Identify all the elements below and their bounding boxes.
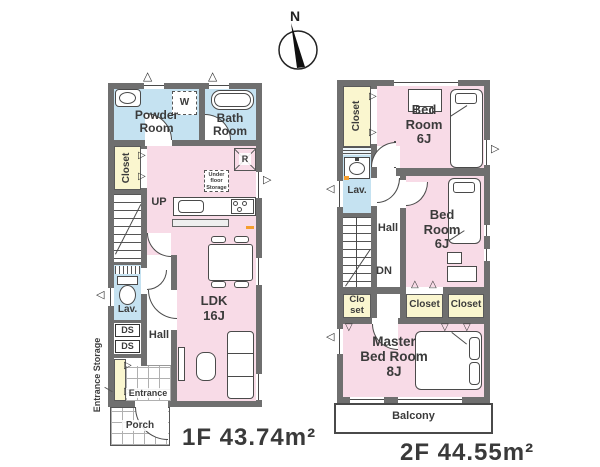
lav-shelf-2f xyxy=(343,147,371,155)
folding-door-icon: ▽ xyxy=(345,323,353,333)
room-label-closet-inner: Closet xyxy=(406,299,443,310)
washer-label: W xyxy=(179,97,190,108)
orange-marker xyxy=(344,176,349,180)
wall-wet-bottom-right xyxy=(172,140,256,146)
floor1-wall-ds-entrance xyxy=(114,354,141,358)
window xyxy=(144,83,164,89)
floor2-title: 2F 44.55m² xyxy=(400,439,534,467)
wall-bedroom1-bedroom2 xyxy=(396,168,484,176)
room-label-closet-outer: Closet xyxy=(448,299,484,310)
room-label-porch: Porch xyxy=(122,420,158,431)
room-label-bedroom-north: Bed Room 6J xyxy=(398,103,450,147)
compass-icon: N xyxy=(274,6,322,74)
label-up: UP xyxy=(147,196,171,208)
sofa-cushion-line xyxy=(227,353,254,354)
toilet-bowl xyxy=(119,285,136,305)
window-marker-icon: ▷ xyxy=(263,174,271,185)
orange-marker xyxy=(246,226,254,229)
compass-north-label: N xyxy=(290,8,300,24)
window xyxy=(484,140,490,165)
ds-lower-box: DS xyxy=(115,340,140,353)
powder-sink-bowl xyxy=(119,92,136,104)
vent-marker-icon: △ xyxy=(208,70,217,82)
folding-door-icon: △ xyxy=(429,280,437,290)
sofa-cushion-line xyxy=(227,376,254,377)
room-label-balcony: Balcony xyxy=(334,410,493,422)
kitchen-island xyxy=(172,219,229,227)
window xyxy=(394,80,458,86)
window xyxy=(337,329,343,354)
folding-door-icon: ▷ xyxy=(369,92,377,102)
label-dn: DN xyxy=(372,265,396,277)
burner-icon xyxy=(233,201,238,206)
folding-door-icon: ▷ xyxy=(369,128,377,138)
room-label-powder: Powder Room xyxy=(114,109,199,136)
vent-marker-icon: △ xyxy=(143,70,152,82)
dining-chair xyxy=(211,281,226,288)
under-floor-storage: Under floor Storage xyxy=(204,170,229,192)
window-marker-icon: ◁ xyxy=(326,331,334,342)
folding-door-icon: ▷ xyxy=(124,361,132,371)
folding-door-icon: ▽ xyxy=(463,323,471,333)
window xyxy=(484,249,490,261)
room-label-hall1f: Hall xyxy=(145,329,173,341)
floor-plan-canvas: N DS DS W xyxy=(0,0,600,467)
room-label-bedroom-middle: Bed Room 6J xyxy=(418,208,466,252)
folding-door-icon: ▷ xyxy=(138,151,146,161)
pillow xyxy=(469,337,480,360)
burner-icon xyxy=(237,207,242,212)
vanity-faucet xyxy=(355,158,359,161)
stairs-center-line xyxy=(356,217,357,289)
desk xyxy=(447,266,477,282)
window xyxy=(209,83,229,89)
window xyxy=(484,225,490,236)
window-marker-icon: ▷ xyxy=(491,143,499,154)
pillow xyxy=(469,362,480,385)
room-label-master: Master Bed Room 8J xyxy=(348,334,440,379)
room-label-lav1f: Lav. xyxy=(114,304,141,315)
room-label-hall2f: Hall xyxy=(374,222,402,234)
powder-door-opening xyxy=(145,140,172,146)
room-label-bath: Bath Room xyxy=(204,112,256,139)
room-label-lav2f: Lav. xyxy=(343,185,371,196)
dining-table xyxy=(208,244,253,281)
folding-door-icon: ▷ xyxy=(138,172,146,182)
wall-closet-row-right xyxy=(443,287,484,294)
floor1-wall-lav-ds xyxy=(114,320,141,323)
window xyxy=(256,258,262,285)
pillow xyxy=(455,93,477,104)
room-label-entrance: Entrance xyxy=(126,388,170,398)
desk-chair xyxy=(447,252,462,264)
room-label-closet2f: Closet xyxy=(351,90,363,142)
window xyxy=(256,374,262,400)
window xyxy=(256,172,262,198)
folding-door-icon: △ xyxy=(411,280,419,290)
ds-lower-label: DS xyxy=(121,341,134,351)
dining-chair xyxy=(234,281,249,288)
window-marker-icon: ◁ xyxy=(326,183,334,194)
room-label-closet1f: Closet xyxy=(121,142,133,194)
sofa xyxy=(227,331,254,399)
ds-upper-label: DS xyxy=(121,325,134,335)
room-label-closet-stair: Clo set xyxy=(343,295,371,316)
lav-shelf xyxy=(115,266,140,274)
toilet-tank xyxy=(117,276,138,285)
dining-chair xyxy=(234,236,249,243)
ds-upper-box: DS xyxy=(115,324,140,337)
kitchen-sink xyxy=(178,200,204,213)
floor1-title: 1F 43.74m² xyxy=(182,424,316,452)
room-label-ldk: LDK 16J xyxy=(188,294,240,323)
bathtub-inner xyxy=(214,93,251,107)
wall-closet-row-left xyxy=(343,287,406,294)
burner-icon xyxy=(242,201,247,206)
folding-door-icon: ▽ xyxy=(441,323,449,333)
pillow xyxy=(453,182,475,193)
refrigerator-label: R xyxy=(239,153,251,165)
vanity-basin xyxy=(349,162,365,175)
coffee-table xyxy=(196,352,216,381)
dining-chair xyxy=(211,236,226,243)
label-entrance-storage: Entrance Storage xyxy=(92,335,104,415)
tv-board xyxy=(178,347,185,381)
window-marker-icon: ◁ xyxy=(96,289,104,300)
